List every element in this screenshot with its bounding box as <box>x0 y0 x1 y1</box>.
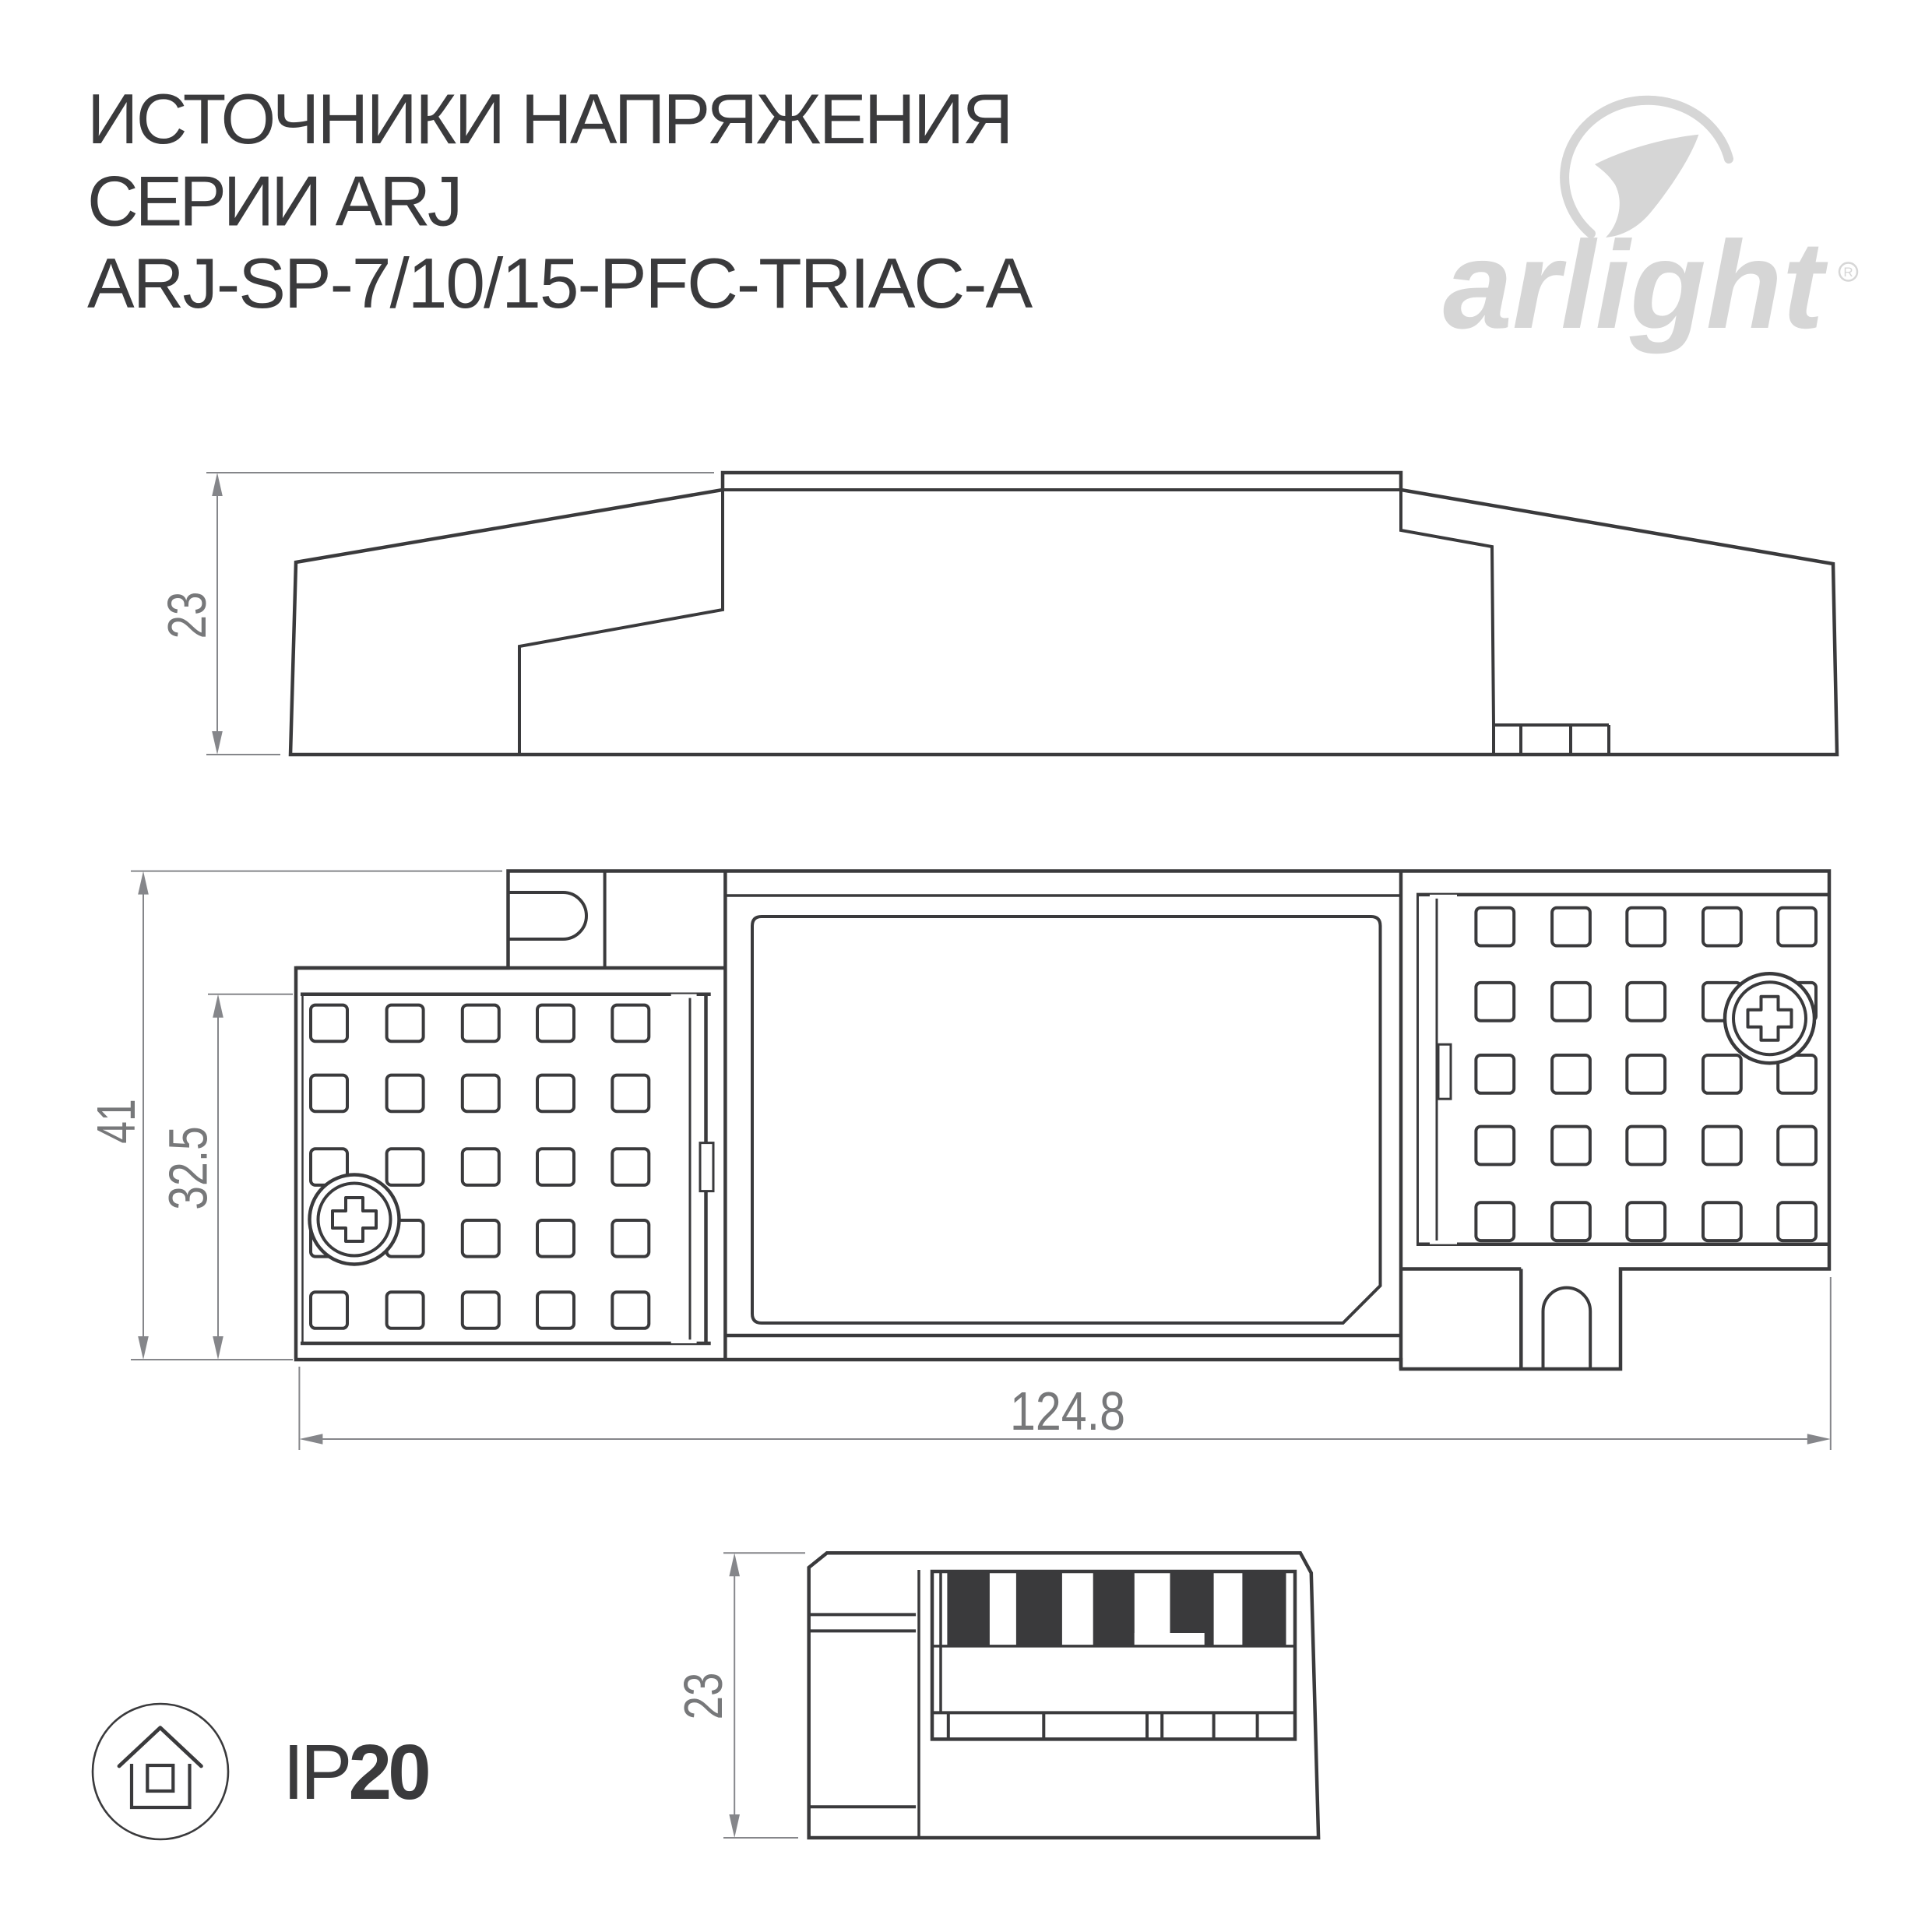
svg-text:IP20: IP20 <box>283 1729 428 1816</box>
svg-text:ARJ-SP-7/10/15-PFC-TRIAC-A: ARJ-SP-7/10/15-PFC-TRIAC-A <box>87 245 1033 323</box>
svg-text:23: 23 <box>674 1673 734 1720</box>
svg-text:arlight: arlight <box>1443 215 1828 354</box>
svg-text:СЕРИИ ARJ: СЕРИИ ARJ <box>87 163 459 241</box>
svg-text:23: 23 <box>157 592 218 639</box>
svg-text:124.8: 124.8 <box>1010 1380 1125 1441</box>
svg-text:R: R <box>1843 265 1853 280</box>
svg-text:32.5: 32.5 <box>158 1126 219 1210</box>
svg-text:41: 41 <box>86 1099 146 1144</box>
svg-text:ИСТОЧНИКИ НАПРЯЖЕНИЯ: ИСТОЧНИКИ НАПРЯЖЕНИЯ <box>87 80 1012 159</box>
